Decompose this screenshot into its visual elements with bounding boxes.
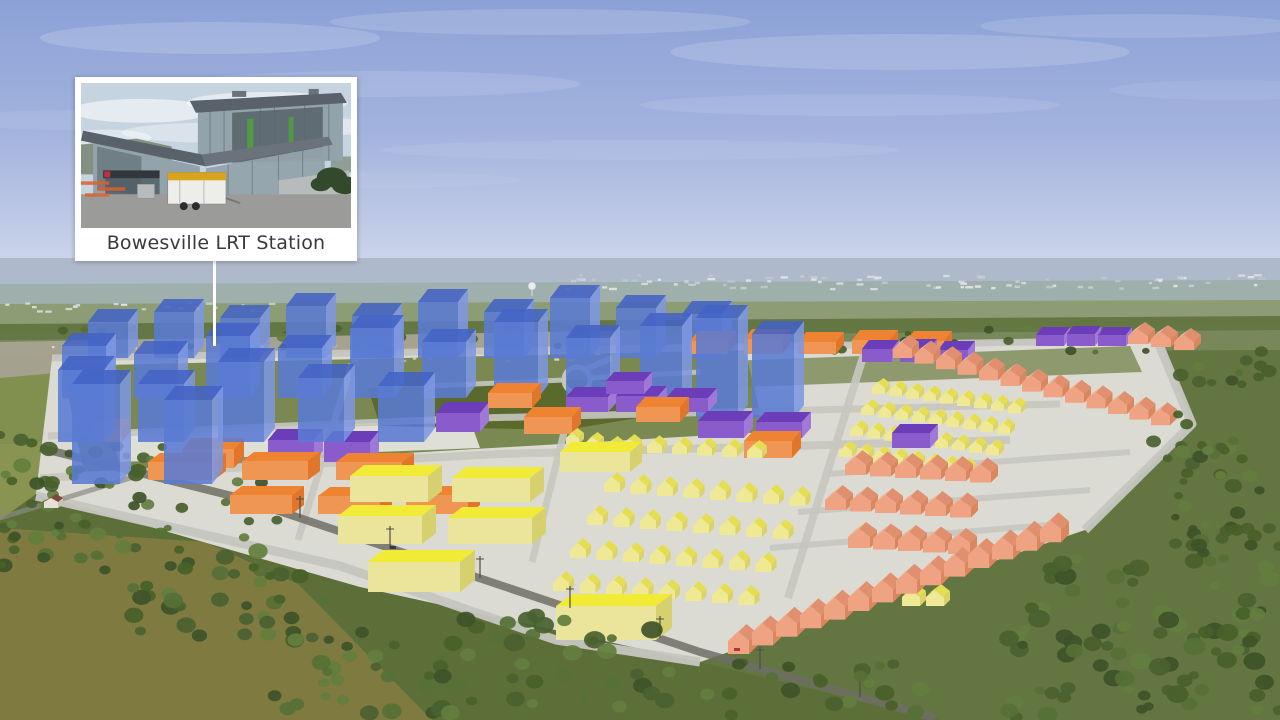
purple-back-right — [1036, 326, 1132, 346]
car — [734, 648, 740, 651]
station-photo — [81, 83, 351, 228]
orange-mid-5 — [636, 397, 689, 422]
purple-mid-4 — [606, 372, 652, 394]
station-callout-label: Bowesville LRT Station — [81, 228, 351, 261]
purple-mid-6 — [892, 424, 938, 448]
car — [390, 546, 396, 549]
aerial-masterplan-render: Bowesville LRT Station — [0, 0, 1280, 720]
purple-mid-2 — [436, 402, 489, 432]
yellow-boxes-row-3 — [368, 550, 475, 592]
station-callout: Bowesville LRT Station — [75, 77, 357, 261]
callout-leader-line — [213, 256, 216, 346]
yellow-box-top — [560, 442, 642, 472]
orange-mid-3 — [488, 383, 541, 408]
orange-mid-4 — [524, 407, 581, 434]
